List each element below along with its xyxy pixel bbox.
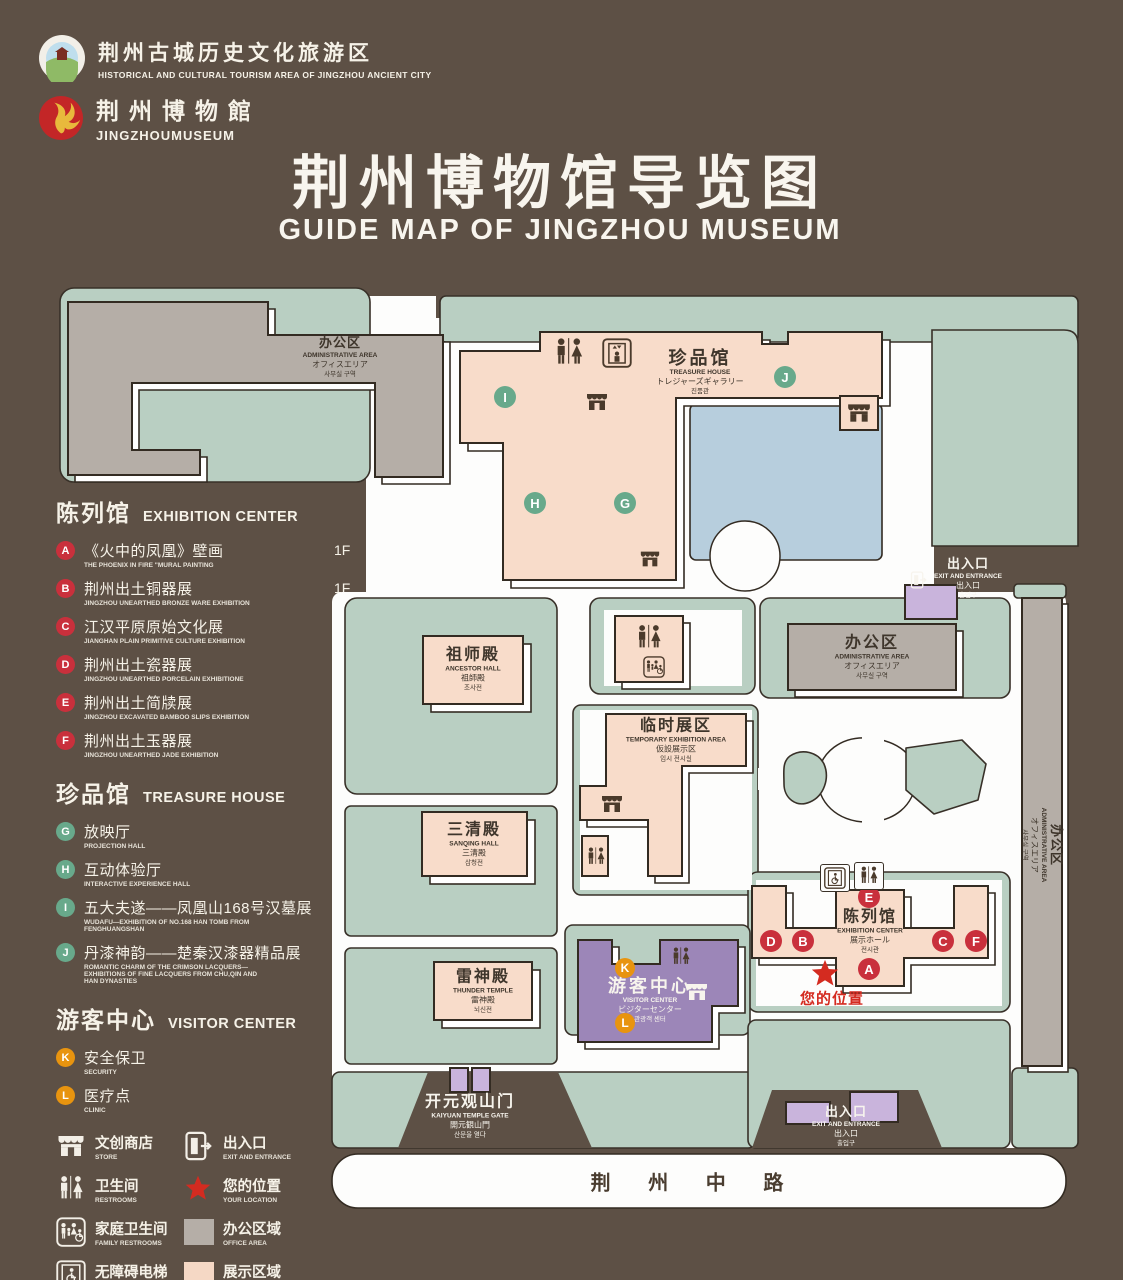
label-exit-south: 出入口 EXIT AND ENTRANCE 出入口 출입구 [812, 1105, 880, 1147]
store-icon [638, 548, 662, 570]
label-sanqing-hall: 三清殿 SANQING HALL 三清殿 삼청전 [447, 821, 501, 866]
store-icon [598, 792, 626, 816]
lawn-east-cap [1014, 584, 1066, 598]
marker-H: H [524, 492, 546, 514]
label-road: 荆 州 中 路 [591, 1167, 800, 1196]
museum-map-canvas [0, 0, 1123, 1280]
garden-path [862, 816, 884, 850]
marker-B: B [792, 930, 814, 952]
marker-I: I [494, 386, 516, 408]
family-restroom-icon [640, 656, 668, 678]
restroom-icon [552, 336, 586, 370]
pond-edge-path [710, 521, 780, 591]
gate-pillar [472, 1068, 490, 1092]
restroom-icon [854, 862, 884, 890]
store-icon [846, 400, 872, 426]
marker-L: L [615, 1013, 635, 1033]
label-ancestor-hall: 祖师殿 ANCESTOR HALL 祖師殿 조사전 [445, 646, 501, 691]
marker-K: K [615, 958, 635, 978]
marker-C: C [932, 930, 954, 952]
label-treasure-house: 珍品馆 TREASURE HOUSE トレジャーズギャラリー 진품관 [656, 348, 743, 396]
marker-J: J [774, 366, 796, 388]
garden-path [862, 710, 884, 744]
guide-map-poster: 荆州古城历史文化旅游区 HISTORICAL AND CULTURAL TOUR… [0, 0, 1123, 1280]
label-your-location: 您的位置 [800, 988, 864, 1009]
label-admin-northwest: 办公区 ADMINISTRATIVE AREA オフィスエリア 사무실 구역 [303, 336, 378, 378]
marker-A: A [858, 958, 880, 980]
marker-F: F [965, 930, 987, 952]
label-temporary-exhibition: 临时展区 TEMPORARY EXHIBITION AREA 仮設展示区 임시 … [626, 717, 726, 762]
label-admin-east: 办公区 ADMINISTRATIVE AREA オフィスエリア 사무실 구역 [835, 634, 910, 679]
your-location-star-icon [810, 958, 840, 988]
marker-D: D [760, 930, 782, 952]
label-admin-strip: 办公区 ADMINISTRATIVE AREA オフィスエリア 사무실 구역 [1021, 808, 1063, 883]
store-icon [584, 390, 610, 414]
restroom-icon [585, 842, 607, 872]
elevator-icon [602, 336, 632, 370]
label-exit-north: 出入口 EXIT AND ENTRANCE 出入口 출입구 [934, 557, 1002, 599]
label-thunder-temple: 雷神殿 THUNDER TEMPLE 雷神殿 뇌신전 [453, 968, 513, 1013]
garden-pond-path [818, 738, 916, 822]
exit-icon [910, 570, 928, 590]
lawn-top-right [932, 330, 1078, 546]
lawn-corner [1012, 1068, 1078, 1148]
restroom-icon [668, 946, 694, 968]
gate-pillar [450, 1068, 468, 1092]
accessible-elevator-icon [820, 864, 850, 892]
restroom-icon [634, 622, 664, 654]
store-icon [684, 980, 710, 1004]
label-exhibition-center: 陈列馆 EXHIBITION CENTER 展示ホール 전시관 [837, 908, 903, 953]
label-kaiyuan-gate: 开元观山门 KAIYUAN TEMPLE GATE 開元観山門 산문을 열다 [425, 1093, 515, 1138]
marker-G: G [614, 492, 636, 514]
